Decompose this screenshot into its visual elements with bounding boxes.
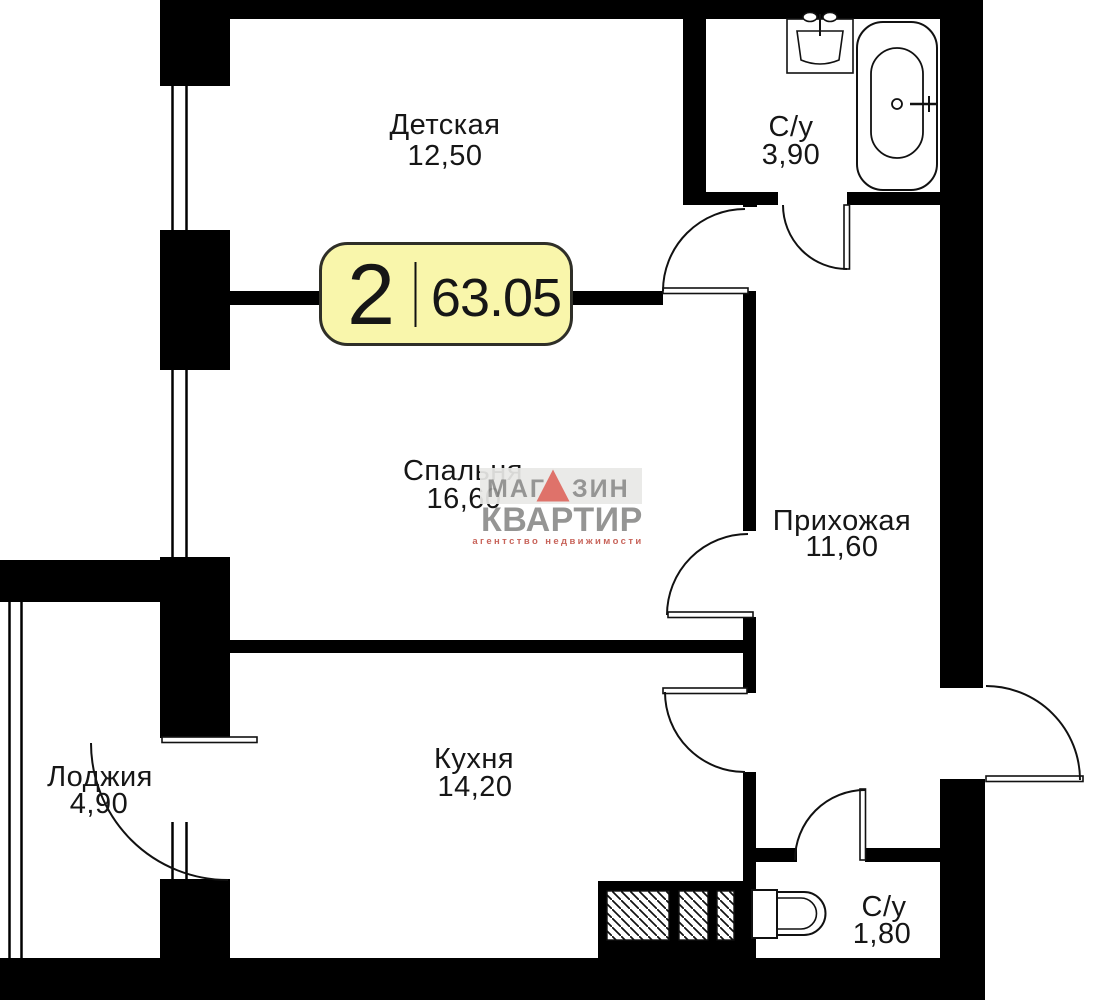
watermark: МАГ ЗИН КВАРТИР агентство недвижимости <box>472 468 643 547</box>
wall-right-upper <box>940 0 983 688</box>
room-area-hallway: 11,60 <box>806 531 879 563</box>
watermark-brand-left: МАГ <box>487 475 546 503</box>
wall-bath2-top-right <box>865 848 940 862</box>
room-area-nursery: 12,50 <box>407 140 482 172</box>
toilet-icon <box>752 890 826 938</box>
room-area-bathroom-guest: 1,80 <box>853 918 911 950</box>
wall-bedroom-hallway <box>743 291 756 531</box>
apartment-badge: 2 63.05 <box>321 244 572 345</box>
wall-bath2-top-left <box>755 848 797 862</box>
wall-bedroom-kitchen <box>230 640 743 653</box>
wall-hallway-stub <box>743 617 756 693</box>
wall-top <box>160 0 983 19</box>
wall-left-block-3 <box>160 557 230 738</box>
loggia-door-sill <box>162 737 257 743</box>
ventilation-shaft-icon <box>598 881 745 958</box>
wall-bath-bottom-left <box>706 192 778 205</box>
wall-loggia-top <box>0 560 160 602</box>
bathroom-main-door-leaf <box>844 205 850 269</box>
badge-total-area: 63.05 <box>431 268 561 328</box>
kitchen-door-leaf <box>663 688 747 694</box>
entrance-door-leaf <box>986 776 1083 782</box>
badge-rooms-count: 2 <box>347 247 395 343</box>
wall-bottom <box>0 958 985 1000</box>
wall-bath-bottom-right <box>847 192 940 205</box>
watermark-brand-right: ЗИН <box>572 475 630 503</box>
room-area-bathroom-main: 3,90 <box>762 139 820 171</box>
wall-right-lower <box>940 779 985 1000</box>
wall-right-notch <box>930 848 940 862</box>
bedroom-top-door-leaf <box>663 288 748 294</box>
wall-left-block-4 <box>160 879 230 962</box>
room-label-nursery: Детская <box>390 109 501 141</box>
room-area-loggia: 4,90 <box>70 788 128 820</box>
wall-nursery-bath <box>683 19 706 205</box>
floor-plan: Детская 12,50 С/у 3,90 Спальня 16,60 При… <box>0 0 1101 1000</box>
watermark-tagline: агентство недвижимости <box>472 536 643 547</box>
wall-left-block-2 <box>160 230 230 370</box>
wall-jamb-notch <box>743 197 757 207</box>
room-area-kitchen: 14,20 <box>437 771 512 803</box>
bathtub-icon <box>857 22 938 190</box>
sink-icon <box>787 13 853 74</box>
watermark-brand-bottom: КВАРТИР <box>481 501 643 539</box>
bathroom-guest-door-leaf <box>860 789 866 860</box>
bedroom-side-door-leaf <box>668 612 753 618</box>
wall-left-block-1 <box>160 0 230 86</box>
